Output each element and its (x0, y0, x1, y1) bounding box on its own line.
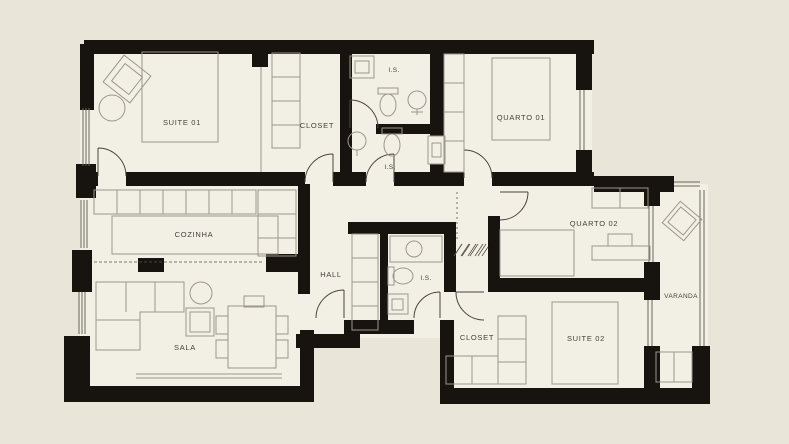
heater-niche (428, 136, 445, 164)
room-label-closet02: CLOSET (460, 333, 494, 342)
room-label-suite01: SUITE 01 (163, 118, 201, 127)
room-label-quarto01: QUARTO 01 (497, 113, 546, 122)
room-label-closet01: CLOSET (300, 121, 334, 130)
room-label-is-hall: I.S. (420, 275, 431, 282)
floor-plan: SUITE 01 CLOSET I.S. I.S. QUARTO 01 COZI… (0, 0, 789, 444)
room-label-quarto02: QUARTO 02 (570, 219, 619, 228)
room-label-cozinha: COZINHA (175, 230, 214, 239)
room-label-varanda: VARANDA (664, 293, 698, 300)
room-label-sala: SALA (174, 343, 196, 352)
room-label-hall: HALL (320, 270, 342, 279)
room-label-is-top: I.S. (388, 67, 399, 74)
floor-plan-canvas: SUITE 01 CLOSET I.S. I.S. QUARTO 01 COZI… (0, 0, 789, 444)
room-label-suite02: SUITE 02 (567, 334, 605, 343)
room-label-is-mid: I.S. (384, 164, 395, 171)
